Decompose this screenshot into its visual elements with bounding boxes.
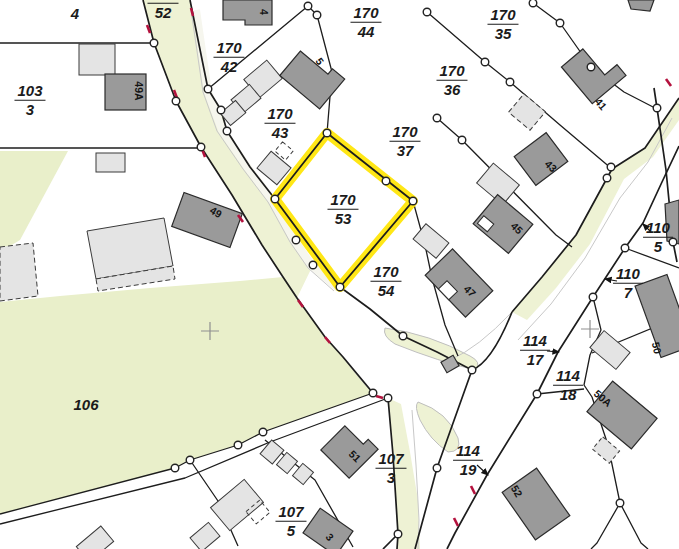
building [79, 44, 115, 75]
building [0, 243, 38, 301]
building-top-right [628, 0, 654, 11]
building-right-edge [665, 200, 679, 244]
map-canvas [0, 0, 679, 549]
building-49A [105, 74, 146, 110]
cadastral-map: 4170521704217043170441703517036170371705… [0, 0, 679, 549]
building [96, 153, 125, 172]
